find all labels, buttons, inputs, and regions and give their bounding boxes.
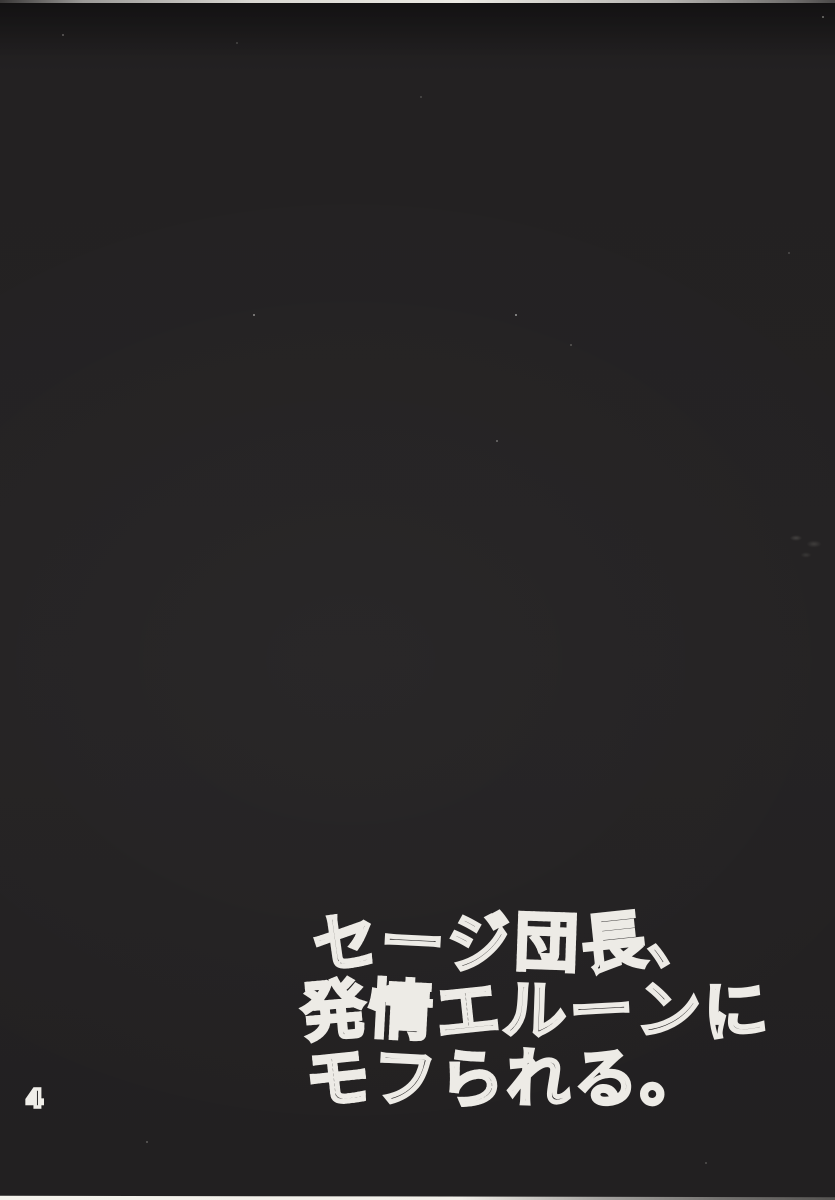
title-char: フ: [369, 1040, 440, 1119]
title-char: モ: [300, 1039, 375, 1122]
title-char: ら: [434, 1038, 510, 1122]
title-line-3: モフられる。: [304, 1042, 706, 1118]
scan-shadow-top: [0, 3, 835, 58]
title-char: に: [699, 971, 772, 1053]
scanned-doujinshi-page: セージ団長、 発情エルーンに モフられる。 4: [0, 0, 835, 1200]
title-line-1: セージ団長、: [312, 906, 714, 982]
title-line-2: 発情エルーンに: [300, 974, 769, 1050]
title-char: ル: [500, 973, 570, 1051]
scan-edge-bottom: [0, 1195, 835, 1200]
title-char: る: [569, 1040, 641, 1120]
title-char: 団: [512, 905, 582, 983]
title-char: 。: [637, 1040, 708, 1119]
page-number: 4: [26, 1086, 43, 1111]
title-char: ー: [377, 904, 448, 983]
scuff-mark: [784, 530, 834, 564]
title-char: れ: [504, 1041, 574, 1119]
dust-specks: [0, 0, 2, 2]
